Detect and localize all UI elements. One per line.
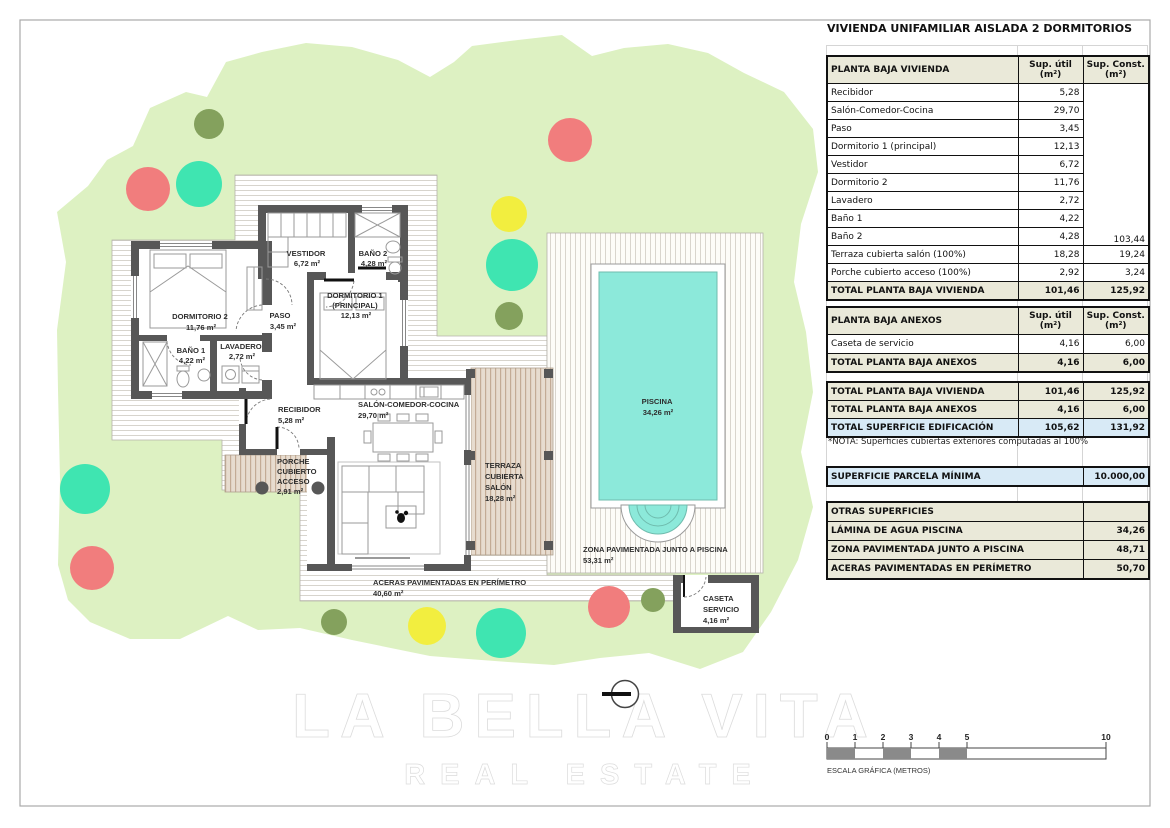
cell-value: 10.000,00	[1083, 467, 1149, 486]
cell-name: Lavadero	[827, 192, 1018, 210]
sheet-title: VIVIENDA UNIFAMILIAR AISLADA 2 DORMITORI…	[827, 22, 1132, 35]
room-label-bano2: BAÑO 2 4,28 m²	[359, 249, 390, 268]
cell-util: 101,46	[1018, 382, 1083, 401]
table-header-row: OTRAS SUPERFICIES	[827, 502, 1149, 522]
room-label-bano1: BAÑO 1 4,22 m²	[177, 346, 208, 365]
header-name: OTRAS SUPERFICIES	[827, 502, 1083, 522]
svg-text:4: 4	[937, 732, 942, 742]
table-row: SUPERFICIE PARCELA MÍNIMA 10.000,00	[827, 467, 1149, 486]
tree-icon	[194, 109, 224, 139]
tree-icon	[491, 196, 527, 232]
table-planta-baja-vivienda: PLANTA BAJA VIVIENDA Sup. útil (m²) Sup.…	[826, 55, 1150, 301]
cell-name: Porche cubierto acceso (100%)	[827, 264, 1018, 282]
table-row: TOTAL PLANTA BAJA ANEXOS 4,16 6,00	[827, 401, 1149, 419]
cell-name: Dormitorio 2	[827, 174, 1018, 192]
cell-util: 4,16	[1018, 401, 1083, 419]
cell-name: SUPERFICIE PARCELA MÍNIMA	[827, 467, 1083, 486]
table-otras-superficies: OTRAS SUPERFICIES LÁMINA DE AGUA PISCINA…	[826, 501, 1150, 580]
cell-name: Terraza cubierta salón (100%)	[827, 246, 1018, 264]
cell-name: Recibidor	[827, 84, 1018, 102]
cell-const: 6,00	[1083, 401, 1149, 419]
table-parcela-minima: SUPERFICIE PARCELA MÍNIMA 10.000,00	[826, 466, 1150, 487]
header-sup-util: Sup. útil (m²)	[1018, 307, 1083, 335]
header-empty	[1083, 502, 1149, 522]
cell-name: TOTAL PLANTA BAJA VIVIENDA	[827, 282, 1018, 301]
cell-const: 125,92	[1083, 382, 1149, 401]
table-row: Caseta de servicio 4,16 6,00	[827, 335, 1149, 354]
table-total-row: TOTAL PLANTA BAJA ANEXOS 4,16 6,00	[827, 354, 1149, 373]
cell-util: 105,62	[1018, 419, 1083, 438]
cell-util: 12,13	[1018, 138, 1083, 156]
cell-util: 101,46	[1018, 282, 1083, 301]
cell-const: 125,92	[1083, 282, 1149, 301]
table-row: Recibidor 5,28 103,44	[827, 84, 1149, 102]
table-row: TOTAL PLANTA BAJA VIVIENDA 101,46 125,92	[827, 382, 1149, 401]
svg-text:2: 2	[881, 732, 886, 742]
cell-util: 29,70	[1018, 102, 1083, 120]
header-sup-util: Sup. útil (m²)	[1018, 56, 1083, 84]
cell-name: TOTAL PLANTA BAJA VIVIENDA	[827, 382, 1018, 401]
tree-icon	[476, 608, 526, 658]
header-sup-const: Sup. Const. (m²)	[1083, 56, 1149, 84]
cell-const: 19,24	[1083, 246, 1149, 264]
cell-name: Baño 1	[827, 210, 1018, 228]
svg-text:5: 5	[965, 732, 970, 742]
cell-const: 3,24	[1083, 264, 1149, 282]
tree-icon	[408, 607, 446, 645]
cell-name: Salón-Comedor-Cocina	[827, 102, 1018, 120]
table-row: Porche cubierto acceso (100%)2,923,24	[827, 264, 1149, 282]
cell-name: TOTAL SUPERFICIE EDIFICACIÓN	[827, 419, 1018, 438]
table-row: LÁMINA DE AGUA PISCINA 34,26	[827, 522, 1149, 541]
table-summary: TOTAL PLANTA BAJA VIVIENDA 101,46 125,92…	[826, 381, 1150, 438]
tree-icon	[60, 464, 110, 514]
cell-util: 11,76	[1018, 174, 1083, 192]
tree-icon	[321, 609, 347, 635]
svg-text:LA BELLA VITA: LA BELLA VITA	[292, 682, 878, 751]
tree-icon	[495, 302, 523, 330]
table-row: ZONA PAVIMENTADA JUNTO A PISCINA 48,71	[827, 541, 1149, 560]
cell-name: TOTAL PLANTA BAJA ANEXOS	[827, 401, 1018, 419]
header-name: PLANTA BAJA ANEXOS	[827, 307, 1018, 335]
cell-util: 4,16	[1018, 335, 1083, 354]
cell-const-merged: 103,44	[1083, 84, 1149, 246]
cell-util: 4,28	[1018, 228, 1083, 246]
site-plan-sheet: VESTIDOR 6,72 m² BAÑO 2 4,28 m² DORMITOR…	[0, 0, 1170, 828]
areas-data-panel: VIVIENDA UNIFAMILIAR AISLADA 2 DORMITORI…	[826, 22, 1148, 582]
cell-util: 18,28	[1018, 246, 1083, 264]
table-total-row: TOTAL SUPERFICIE EDIFICACIÓN 105,62 131,…	[827, 419, 1149, 438]
svg-text:0: 0	[825, 732, 830, 742]
cell-util: 2,72	[1018, 192, 1083, 210]
svg-text:1: 1	[853, 732, 858, 742]
cell-util: 2,92	[1018, 264, 1083, 282]
cell-value: 50,70	[1083, 560, 1149, 580]
table-header-row: PLANTA BAJA ANEXOS Sup. útil (m²) Sup. C…	[827, 307, 1149, 335]
cell-util: 4,16	[1018, 354, 1083, 373]
tree-icon	[126, 167, 170, 211]
cell-value: 48,71	[1083, 541, 1149, 560]
header-name: PLANTA BAJA VIVIENDA	[827, 56, 1018, 84]
cell-util: 4,22	[1018, 210, 1083, 228]
cell-name: ACERAS PAVIMENTADAS EN PERÍMETRO	[827, 560, 1083, 580]
cell-const: 6,00	[1083, 335, 1149, 354]
cell-name: Dormitorio 1 (principal)	[827, 138, 1018, 156]
tree-icon	[641, 588, 665, 612]
table-row: ACERAS PAVIMENTADAS EN PERÍMETRO 50,70	[827, 560, 1149, 580]
tree-icon	[70, 546, 114, 590]
tree-icon	[548, 118, 592, 162]
table-planta-baja-anexos: PLANTA BAJA ANEXOS Sup. útil (m²) Sup. C…	[826, 306, 1150, 373]
svg-text:10: 10	[1101, 732, 1111, 742]
note-text: *NOTA: Superficies cubiertas exteriores …	[828, 437, 1088, 447]
svg-text:3: 3	[909, 732, 914, 742]
table-row: Terraza cubierta salón (100%)18,2819,24	[827, 246, 1149, 264]
cell-name: Baño 2	[827, 228, 1018, 246]
scale-caption: ESCALA GRÁFICA (METROS)	[827, 766, 931, 775]
cell-name: ZONA PAVIMENTADA JUNTO A PISCINA	[827, 541, 1083, 560]
cell-util: 5,28	[1018, 84, 1083, 102]
table-total-row: TOTAL PLANTA BAJA VIVIENDA 101,46 125,92	[827, 282, 1149, 301]
cell-const: 131,92	[1083, 419, 1149, 438]
svg-text:REAL ESTATE: REAL ESTATE	[404, 759, 766, 791]
cell-const: 6,00	[1083, 354, 1149, 373]
tree-icon	[176, 161, 222, 207]
cell-name: Vestidor	[827, 156, 1018, 174]
cell-name: Caseta de servicio	[827, 335, 1018, 354]
cell-name: Paso	[827, 120, 1018, 138]
cell-name: TOTAL PLANTA BAJA ANEXOS	[827, 354, 1018, 373]
cell-name: LÁMINA DE AGUA PISCINA	[827, 522, 1083, 541]
tree-icon	[588, 586, 630, 628]
tree-icon	[486, 239, 538, 291]
cell-util: 3,45	[1018, 120, 1083, 138]
cell-value: 34,26	[1083, 522, 1149, 541]
table-header-row: PLANTA BAJA VIVIENDA Sup. útil (m²) Sup.…	[827, 56, 1149, 84]
header-sup-const: Sup. Const. (m²)	[1083, 307, 1149, 335]
cell-util: 6,72	[1018, 156, 1083, 174]
